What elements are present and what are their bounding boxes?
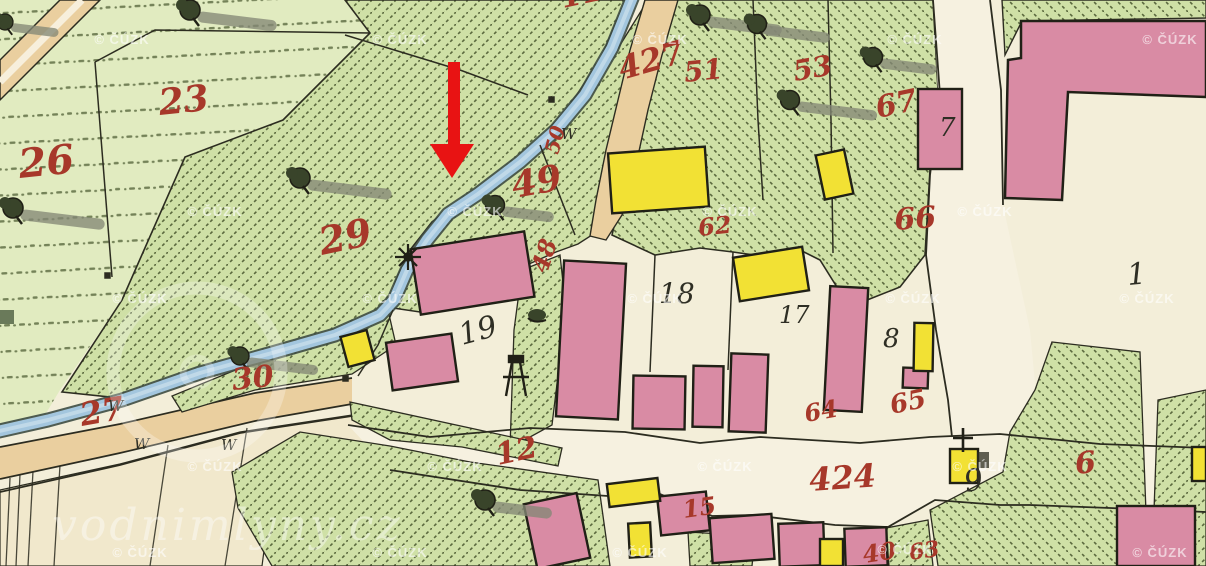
- parcel-number: 66: [893, 200, 937, 238]
- building-pink: [729, 353, 769, 432]
- copyright-watermark: © ČÚZK: [627, 291, 682, 306]
- copyright-watermark: © ČÚZK: [697, 459, 752, 474]
- copyright-watermark: © ČÚZK: [1142, 32, 1197, 47]
- bank-patch: [0, 310, 14, 324]
- building-pink: [710, 514, 775, 563]
- house-number: 1: [1126, 256, 1148, 293]
- copyright-watermark: © ČÚZK: [702, 204, 757, 219]
- building-pink: [386, 334, 458, 391]
- building-pink: [692, 366, 723, 428]
- parcel-number: 64: [802, 394, 840, 428]
- site-watermark: vodnimlyny.cz: [52, 500, 403, 551]
- copyright-watermark: © ČÚZK: [187, 459, 242, 474]
- building-pink: [633, 376, 686, 430]
- parcel-number: 26: [15, 135, 76, 188]
- building-yellow: [914, 323, 934, 371]
- building-yellow: [607, 478, 660, 507]
- copyright-watermark: © ČÚZK: [372, 545, 427, 560]
- copyright-watermark: © ČÚZK: [112, 545, 167, 560]
- copyright-watermark: © ČÚZK: [885, 291, 940, 306]
- copyright-watermark: © ČÚZK: [187, 204, 242, 219]
- parcel-number: 424: [808, 456, 877, 499]
- copyright-watermark: © ČÚZK: [952, 459, 1007, 474]
- copyright-watermark: © ČÚZK: [112, 291, 167, 306]
- copyright-watermark: © ČÚZK: [1119, 291, 1174, 306]
- parcel-number: 30: [230, 359, 275, 398]
- copyright-watermark: © ČÚZK: [372, 32, 427, 47]
- parcel-number: 6: [1073, 445, 1098, 482]
- parcel-number: 23: [156, 77, 211, 124]
- annotation-arrow-shaft: [448, 62, 460, 146]
- copyright-watermark: © ČÚZK: [887, 32, 942, 47]
- building-yellow: [608, 147, 709, 214]
- copyright-watermark: © ČÚZK: [957, 204, 1012, 219]
- building-yellow: [1192, 447, 1206, 481]
- meadow-mark-w: W: [561, 125, 578, 143]
- copyright-watermark: © ČÚZK: [447, 204, 502, 219]
- copyright-watermark: © ČÚZK: [1132, 545, 1187, 560]
- house-number: 17: [779, 301, 810, 329]
- parcel-number: 15: [681, 491, 718, 524]
- copyright-watermark: © ČÚZK: [877, 542, 932, 557]
- parcel-number: 53: [790, 49, 834, 88]
- house-number: 8: [883, 324, 900, 354]
- copyright-watermark: © ČÚZK: [612, 545, 667, 560]
- building-yellow: [733, 247, 809, 301]
- parcel-number: 49: [508, 157, 565, 207]
- map-canvas: 2326293027494850427515367666265641215424…: [0, 0, 1206, 566]
- building-pink: [556, 260, 626, 419]
- cadastral-map: 2326293027494850427515367666265641215424…: [0, 0, 1206, 566]
- parcel-number: 51: [682, 52, 724, 89]
- copyright-watermark: © ČÚZK: [94, 32, 149, 47]
- house-number: 7: [939, 113, 956, 143]
- building-yellow: [820, 539, 843, 566]
- copyright-watermark: © ČÚZK: [632, 32, 687, 47]
- copyright-watermark: © ČÚZK: [427, 459, 482, 474]
- building-pink: [778, 522, 824, 566]
- copyright-watermark: © ČÚZK: [362, 291, 417, 306]
- building-pink: [824, 286, 868, 412]
